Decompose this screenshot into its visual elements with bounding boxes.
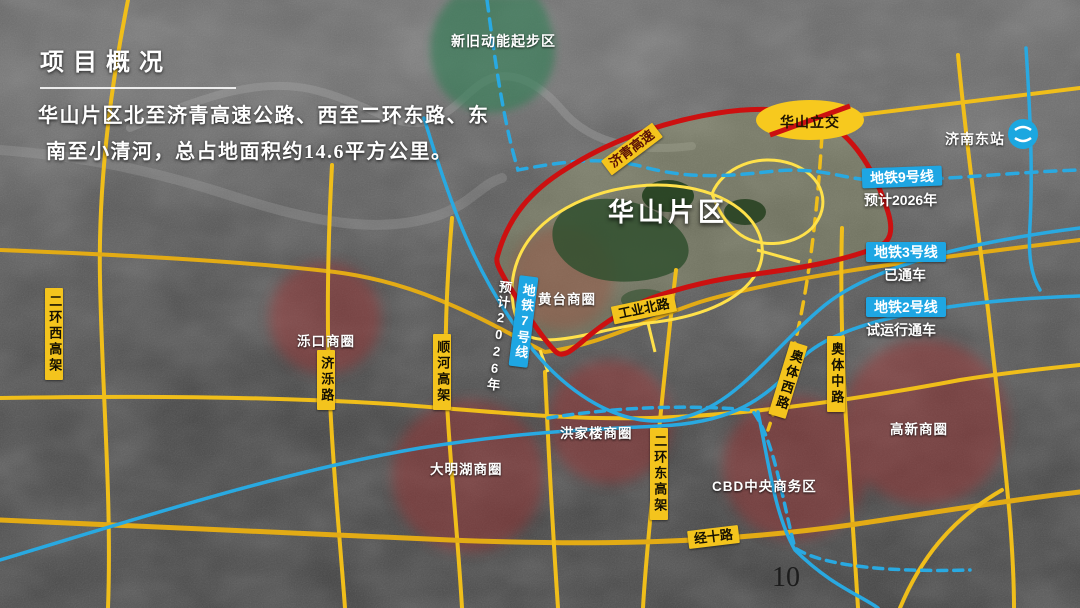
district-huangtai-label: 黄台商圈 [538,288,596,308]
road-shunhe-badge: 顺河高架 [433,334,451,410]
metro-line3-badge: 地铁3号线 [866,242,946,262]
metro-line2-badge: 地铁2号线 [866,297,946,317]
slide-canvas: 项目概况 华山片区北至济青高速公路、西至二环东路、东 南至小清河，总占地面积约1… [0,0,1080,608]
district-hongjialou-label: 洪家楼商圈 [560,422,633,442]
new-energy-zone-label: 新旧动能起步区 [451,31,556,51]
district-cbd-label: CBD中央商务区 [712,475,817,495]
metro-line3-status: 已通车 [884,265,926,285]
description-line-2: 南至小清河，总占地面积约14.6平方公里。 [46,135,453,164]
title-underline [40,87,236,89]
district-luokou-label: 泺口商圈 [297,330,355,350]
road-aotizhong-badge: 奥体中路 [827,336,845,412]
interchange-label: 华山立交 [756,112,864,132]
station-label: 济南东站 [945,129,1005,149]
metro-logo-icon [1008,119,1038,149]
page-number: 10 [772,562,800,594]
metro-line2-status: 试运行通车 [866,320,936,340]
district-gaoxin-label: 高新商圈 [890,418,948,438]
road-erhuandong-badge: 二环东高架 [650,428,668,520]
district-daminghu-label: 大明湖商圈 [430,458,503,478]
description-line-1: 华山片区北至济青高速公路、西至二环东路、东 [38,99,490,128]
page-title: 项目概况 [40,42,172,77]
new-energy-zone-area [430,0,555,113]
metro-line9-status: 预计2026年 [864,190,937,210]
huashan-region-label: 华山片区 [608,192,728,229]
metro-line9-badge: 地铁9号线 [862,166,942,189]
road-jiluo-badge: 济泺路 [317,350,335,410]
road-erhuanxi-badge: 二环西高架 [45,288,63,380]
